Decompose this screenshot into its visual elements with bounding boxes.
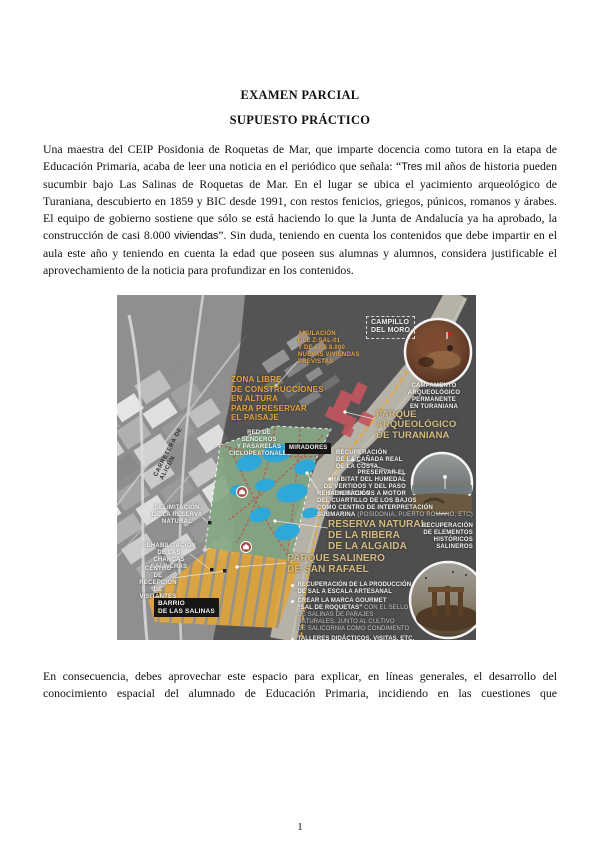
mirador-icon xyxy=(237,487,248,498)
salinas-infographic: CARRETERA DE ALICÚN ANULACIÓN DEL Z-SAL-… xyxy=(117,295,476,640)
bullet-strong: RECUPERACIÓN DE LA PRODUCCIÓN DE SAL A E… xyxy=(298,582,412,595)
map-label-delimitacion: DELIMITACIÓN DE LA RESERVA NATURAL xyxy=(145,505,209,526)
bullet-text: TALLERES DIDÁCTICOS, VISITAS, ETC. xyxy=(298,636,415,640)
bullet-text: CREAR LA MARCA GOURMET “SAL DE ROQUETAS”… xyxy=(298,598,410,633)
map-label-anulacion: ANULACIÓN DEL Z-SAL-01 Y DE LAS 8.000 NU… xyxy=(298,331,360,366)
bullet-strong: TALLERES DIDÁCTICOS, VISITAS, ETC. xyxy=(298,636,415,640)
map-label-centro-recepcion: CENTRO DE RECEPCIÓN DE VISITANTES xyxy=(135,566,181,601)
mirador-icon xyxy=(241,542,252,553)
map-label-parque-arqueologico: PARQUE ARQUEOLÓGICO DE TURANIANA xyxy=(376,410,456,441)
map-label-recuperacion-elementos: RECUPERACIÓN DE ELEMENTOS HISTÓRICOS SAL… xyxy=(419,523,473,551)
map-label-cuartillo: REHABILITACIÓN DEL CUARTILLO DE LOS BAJO… xyxy=(317,491,473,519)
map-label-parque-salinero: PARQUE SALINERO DE SAN RAFAEL xyxy=(287,553,385,575)
quoted-headline-word: Tres xyxy=(401,161,422,173)
intro-paragraph: Una maestra del CEIP Posidonia de Roquet… xyxy=(43,141,557,279)
map-bullet-list: RECUPERACIÓN DE LA PRODUCCIÓN DE SAL A E… xyxy=(291,582,415,640)
map-label-red-senderos: RED DE SENDEROS Y PASARELAS CICLOPEATONA… xyxy=(229,430,289,458)
bullet-dot-icon xyxy=(291,584,294,587)
map-bullet-item: RECUPERACIÓN DE LA PRODUCCIÓN DE SAL A E… xyxy=(291,582,415,596)
map-label-reserva-natural: RESERVA NATURAL DE LA RIBERA DE LA ALGAI… xyxy=(328,519,427,552)
map-label-campamento: CAMPAMENTO ARQUEOLÓGICO PERMANENTE EN TU… xyxy=(405,383,463,411)
closing-paragraph: En consecuencia, debes aprovechar este e… xyxy=(43,668,557,702)
map-label-miradores: MIRADORES xyxy=(285,443,331,454)
map-label-campillo-del-moro: CAMPILLO DEL MORO xyxy=(366,316,415,339)
photo-inset-saltworks xyxy=(410,562,476,638)
map-label-canada-real: RECUPERACIÓN DE LA CAÑADA REAL DE LA COS… xyxy=(336,450,403,471)
exam-document-page: EXAMEN PARCIAL SUPUESTO PRÁCTICO Una mae… xyxy=(0,0,600,848)
page-number: 1 xyxy=(0,821,600,833)
quoted-headline-word: viviendas xyxy=(174,230,218,242)
bullet-text: RECUPERACIÓN DE LA PRODUCCIÓN DE SAL A E… xyxy=(298,582,412,596)
bullet-dot-icon xyxy=(291,600,294,603)
bullet-dot-icon xyxy=(291,638,294,640)
map-label-cuartillo-dim: (POSIDONIA, PUERTO ROMANO, ETC) xyxy=(355,512,473,518)
page-title: EXAMEN PARCIAL xyxy=(0,0,600,103)
map-bullet-item: TALLERES DIDÁCTICOS, VISITAS, ETC. xyxy=(291,636,415,640)
page-subtitle: SUPUESTO PRÁCTICO xyxy=(0,103,600,128)
map-bullet-item: CREAR LA MARCA GOURMET “SAL DE ROQUETAS”… xyxy=(291,598,415,633)
map-label-zona-libre: ZONA LIBRE DE CONSTRUCCIONES EN ALTURA P… xyxy=(231,375,324,423)
